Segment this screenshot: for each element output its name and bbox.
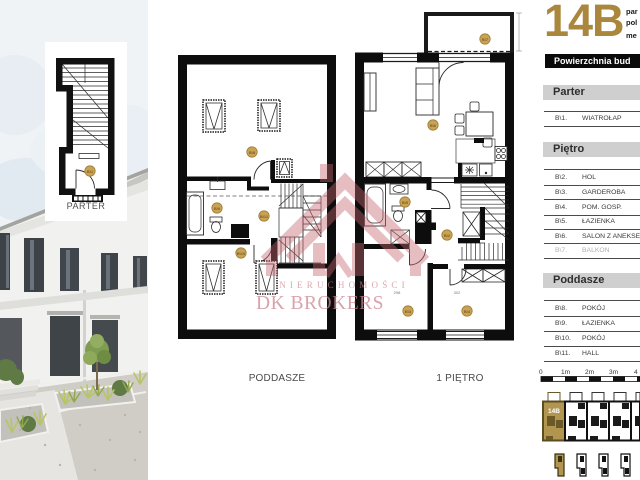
- svg-text:14B: 14B: [548, 408, 560, 415]
- svg-text:PARTER: PARTER: [67, 201, 106, 211]
- svg-text:0: 0: [539, 369, 543, 376]
- svg-text:B\6: B\6: [430, 123, 437, 128]
- svg-text:1m: 1m: [561, 369, 570, 376]
- svg-text:B\2: B\2: [444, 233, 451, 238]
- svg-text:B\3: B\3: [405, 309, 412, 314]
- svg-text:B\1: B\1: [87, 169, 94, 174]
- svg-text:B\7: B\7: [482, 37, 489, 42]
- svg-text:4: 4: [634, 369, 638, 376]
- svg-text:NIERUCHOMOŚCI: NIERUCHOMOŚCI: [279, 280, 409, 290]
- svg-text:PODDASZE: PODDASZE: [249, 373, 306, 384]
- svg-text:B\4: B\4: [464, 309, 471, 314]
- svg-text:B\10: B\10: [237, 251, 246, 256]
- svg-text:2m: 2m: [585, 369, 594, 376]
- svg-text:DK BROKERS: DK BROKERS: [256, 293, 384, 314]
- svg-text:B\9: B\9: [214, 206, 221, 211]
- svg-text:1 PIĘTRO: 1 PIĘTRO: [436, 373, 483, 384]
- svg-text:3m: 3m: [609, 369, 618, 376]
- svg-text:B\5: B\5: [402, 200, 409, 205]
- svg-text:302: 302: [454, 290, 461, 295]
- svg-text:298: 298: [394, 290, 401, 295]
- svg-text:B\11: B\11: [260, 214, 269, 219]
- svg-text:B\8: B\8: [249, 150, 256, 155]
